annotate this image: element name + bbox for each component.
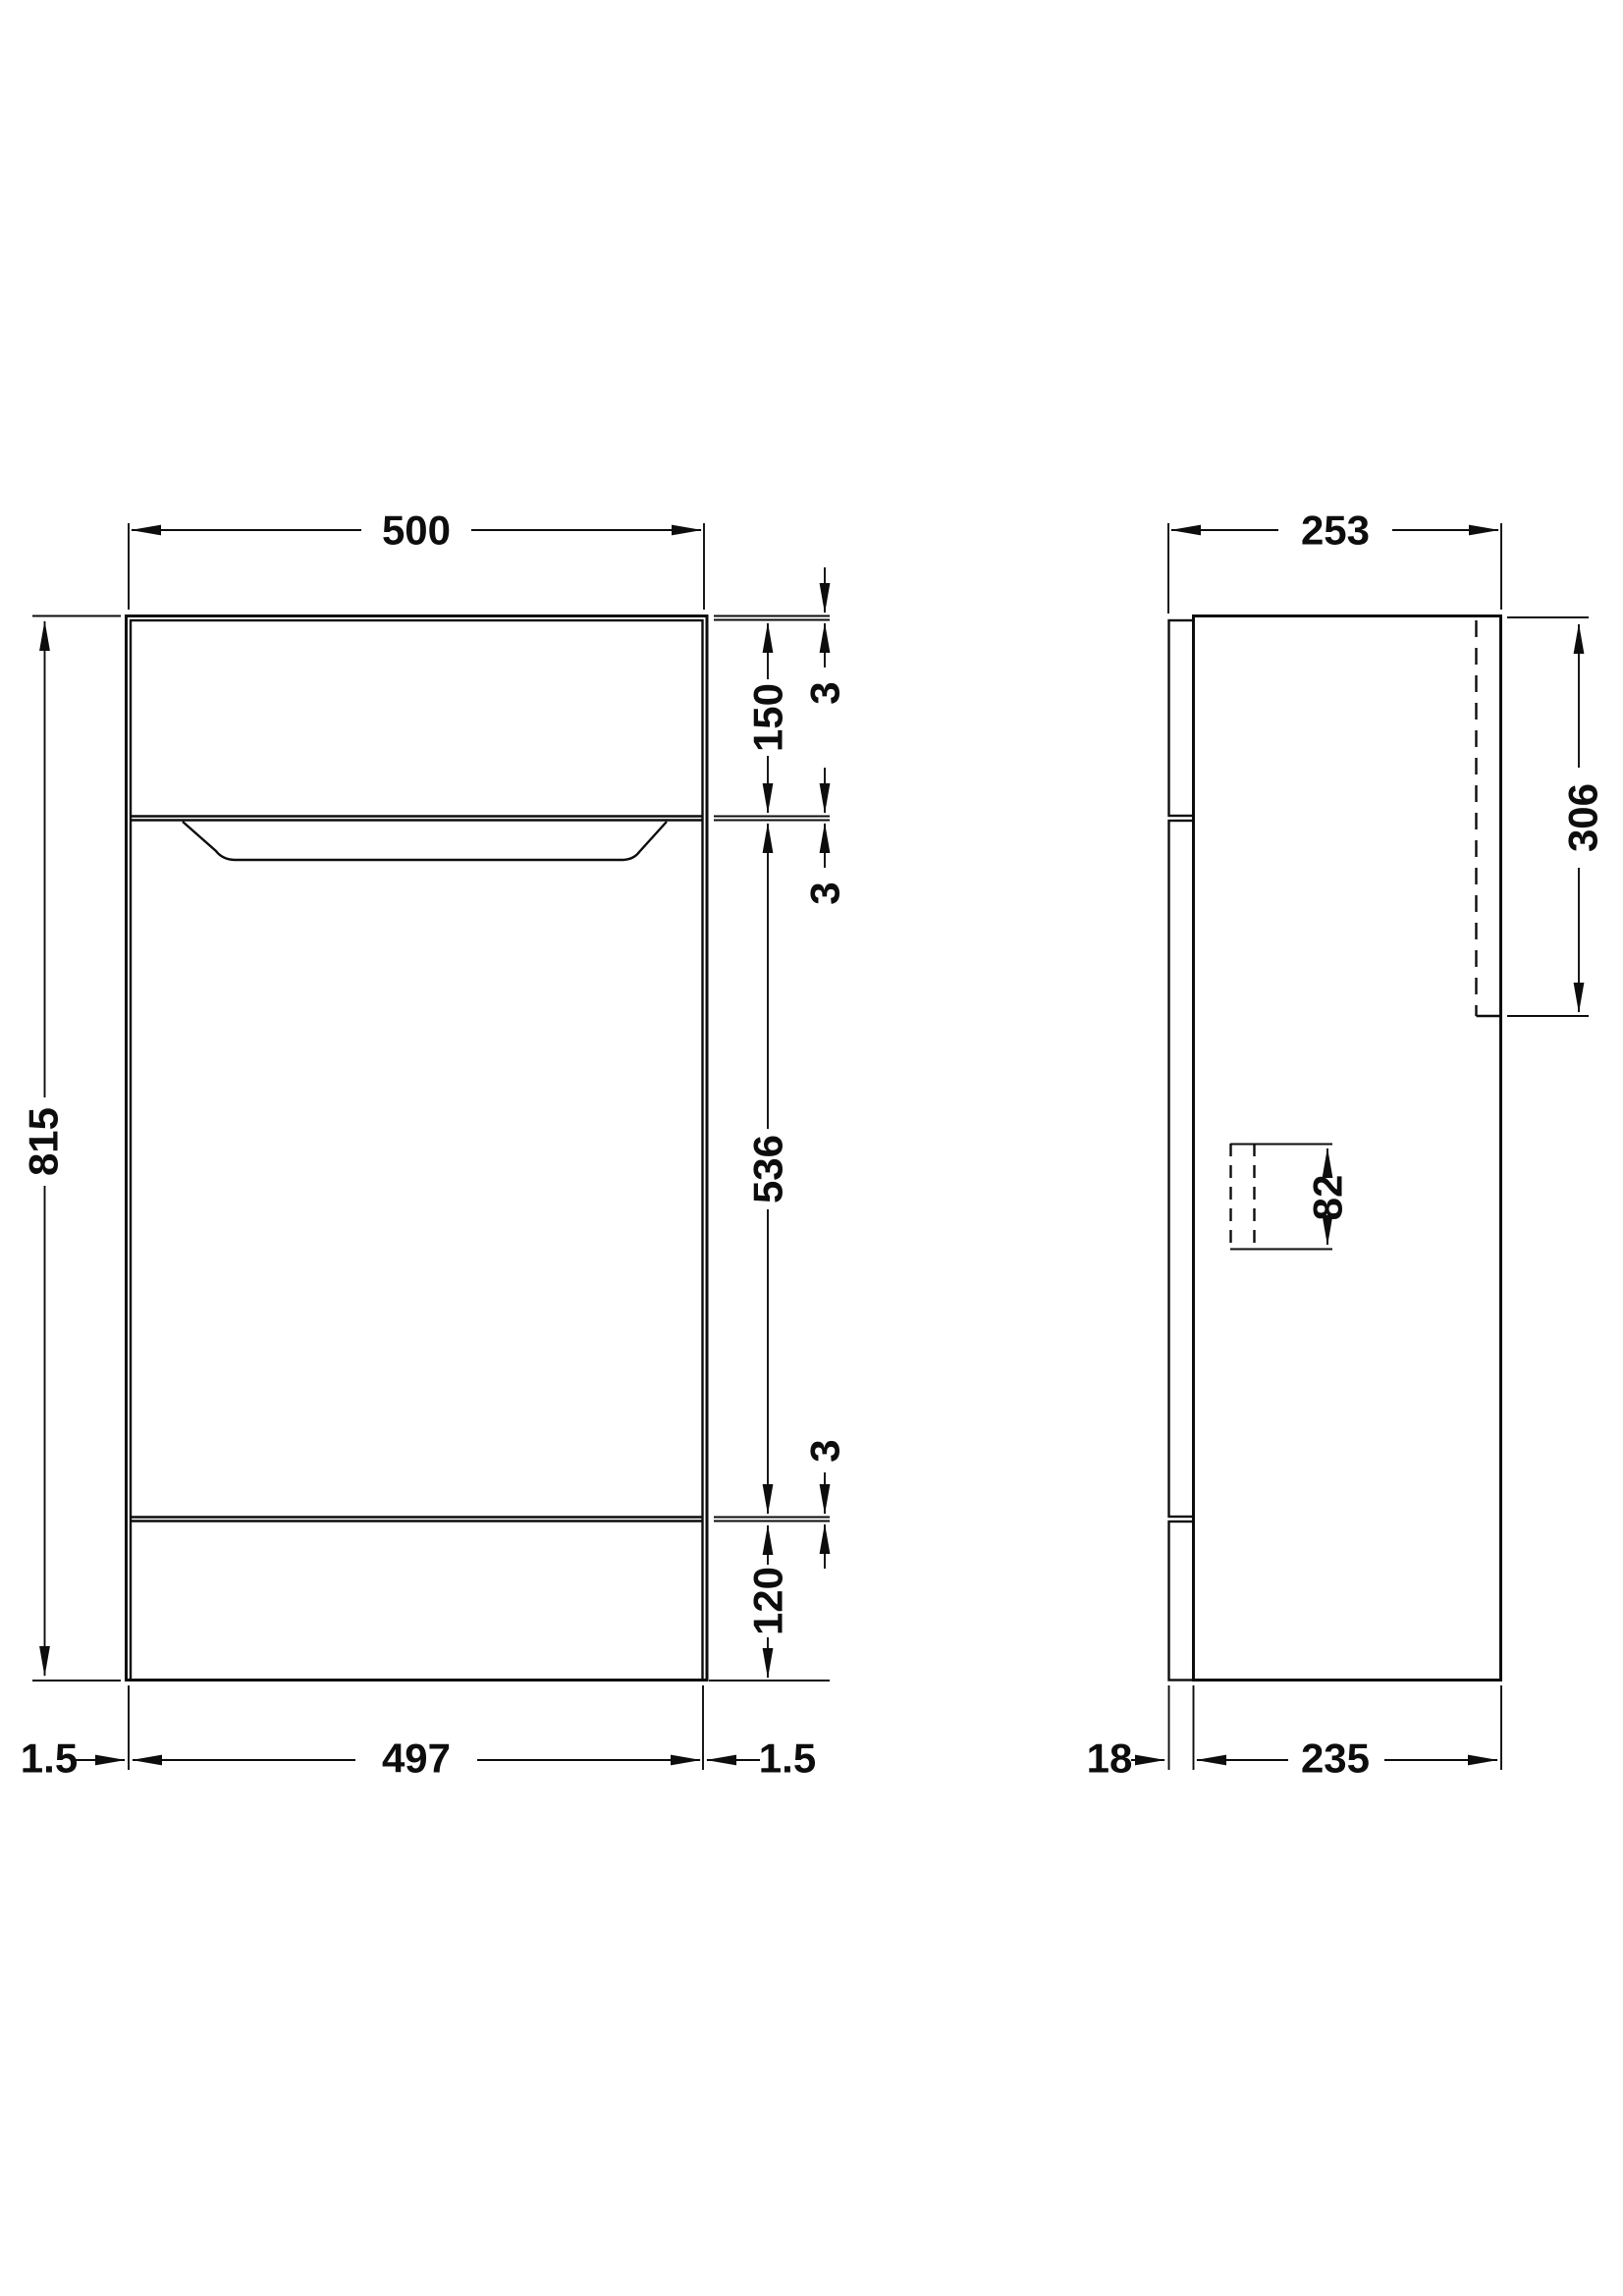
dim-plinth-height: 120 xyxy=(745,1525,791,1678)
dim-label-overall-depth: 253 xyxy=(1301,507,1370,554)
side-plinth-strip xyxy=(1169,1522,1194,1681)
dim-label-left-margin: 1.5 xyxy=(21,1735,78,1782)
dim-label-right-margin: 1.5 xyxy=(759,1735,816,1782)
dim-fixing-zone-height: 82 xyxy=(1305,1148,1351,1245)
dimension-drawing: 500 815 150 3 3 536 xyxy=(0,0,1623,2296)
side-drawer-front-strip xyxy=(1169,620,1194,816)
dim-label-door-width: 497 xyxy=(382,1735,451,1782)
dim-mid-gap: 3 xyxy=(802,768,848,905)
dim-label-door-height: 536 xyxy=(745,1135,791,1203)
dim-front-bottom: 1.5 497 1.5 xyxy=(21,1685,816,1782)
front-handle-recess xyxy=(183,822,667,860)
dim-label-cistern-height: 306 xyxy=(1560,783,1606,852)
side-view-outline xyxy=(1169,616,1501,1681)
dim-label-fixing-height: 82 xyxy=(1305,1175,1351,1221)
dim-door-height: 536 xyxy=(745,824,791,1514)
dim-drawer-front-height: 150 xyxy=(745,623,791,813)
dim-label-overall-height: 815 xyxy=(21,1107,67,1176)
dim-side-overall-depth: 253 xyxy=(1168,507,1501,614)
drawing-canvas: 500 815 150 3 3 536 xyxy=(0,0,1623,2296)
dim-label-front-panel-thickness: 18 xyxy=(1087,1735,1133,1782)
dim-side-bottom: 18 235 xyxy=(1087,1685,1501,1782)
dim-front-overall-width: 500 xyxy=(129,507,704,611)
dim-label-drawer-height: 150 xyxy=(745,683,791,752)
dim-top-gap: 3 xyxy=(802,567,848,705)
dim-front-overall-height: 815 xyxy=(21,616,122,1682)
front-view-outline xyxy=(127,616,708,1681)
dim-label-top-gap: 3 xyxy=(802,681,848,704)
side-carcass-outline xyxy=(1194,616,1501,1681)
dim-cistern-zone-height: 306 xyxy=(1507,617,1606,1016)
dim-label-mid-gap: 3 xyxy=(802,881,848,904)
side-door-strip xyxy=(1169,821,1194,1517)
dim-label-carcass-depth: 235 xyxy=(1301,1735,1370,1782)
dim-label-overall-width: 500 xyxy=(382,507,451,554)
dim-label-bottom-gap: 3 xyxy=(802,1439,848,1462)
dim-label-plinth-height: 120 xyxy=(745,1567,791,1635)
dim-bottom-gap: 3 xyxy=(802,1439,848,1569)
